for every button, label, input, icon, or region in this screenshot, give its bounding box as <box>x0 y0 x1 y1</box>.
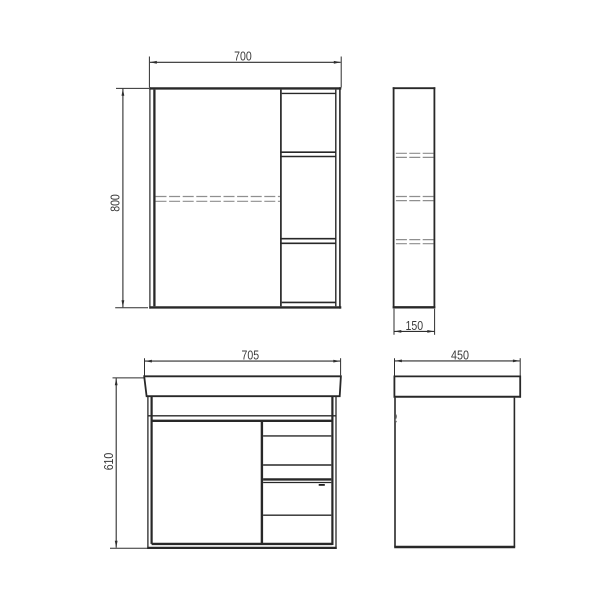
svg-text:800: 800 <box>107 194 122 212</box>
svg-text:700: 700 <box>234 48 252 63</box>
svg-text:610: 610 <box>101 453 116 471</box>
svg-text:450: 450 <box>451 348 469 363</box>
svg-text:150: 150 <box>406 318 424 333</box>
svg-text:705: 705 <box>242 348 260 363</box>
